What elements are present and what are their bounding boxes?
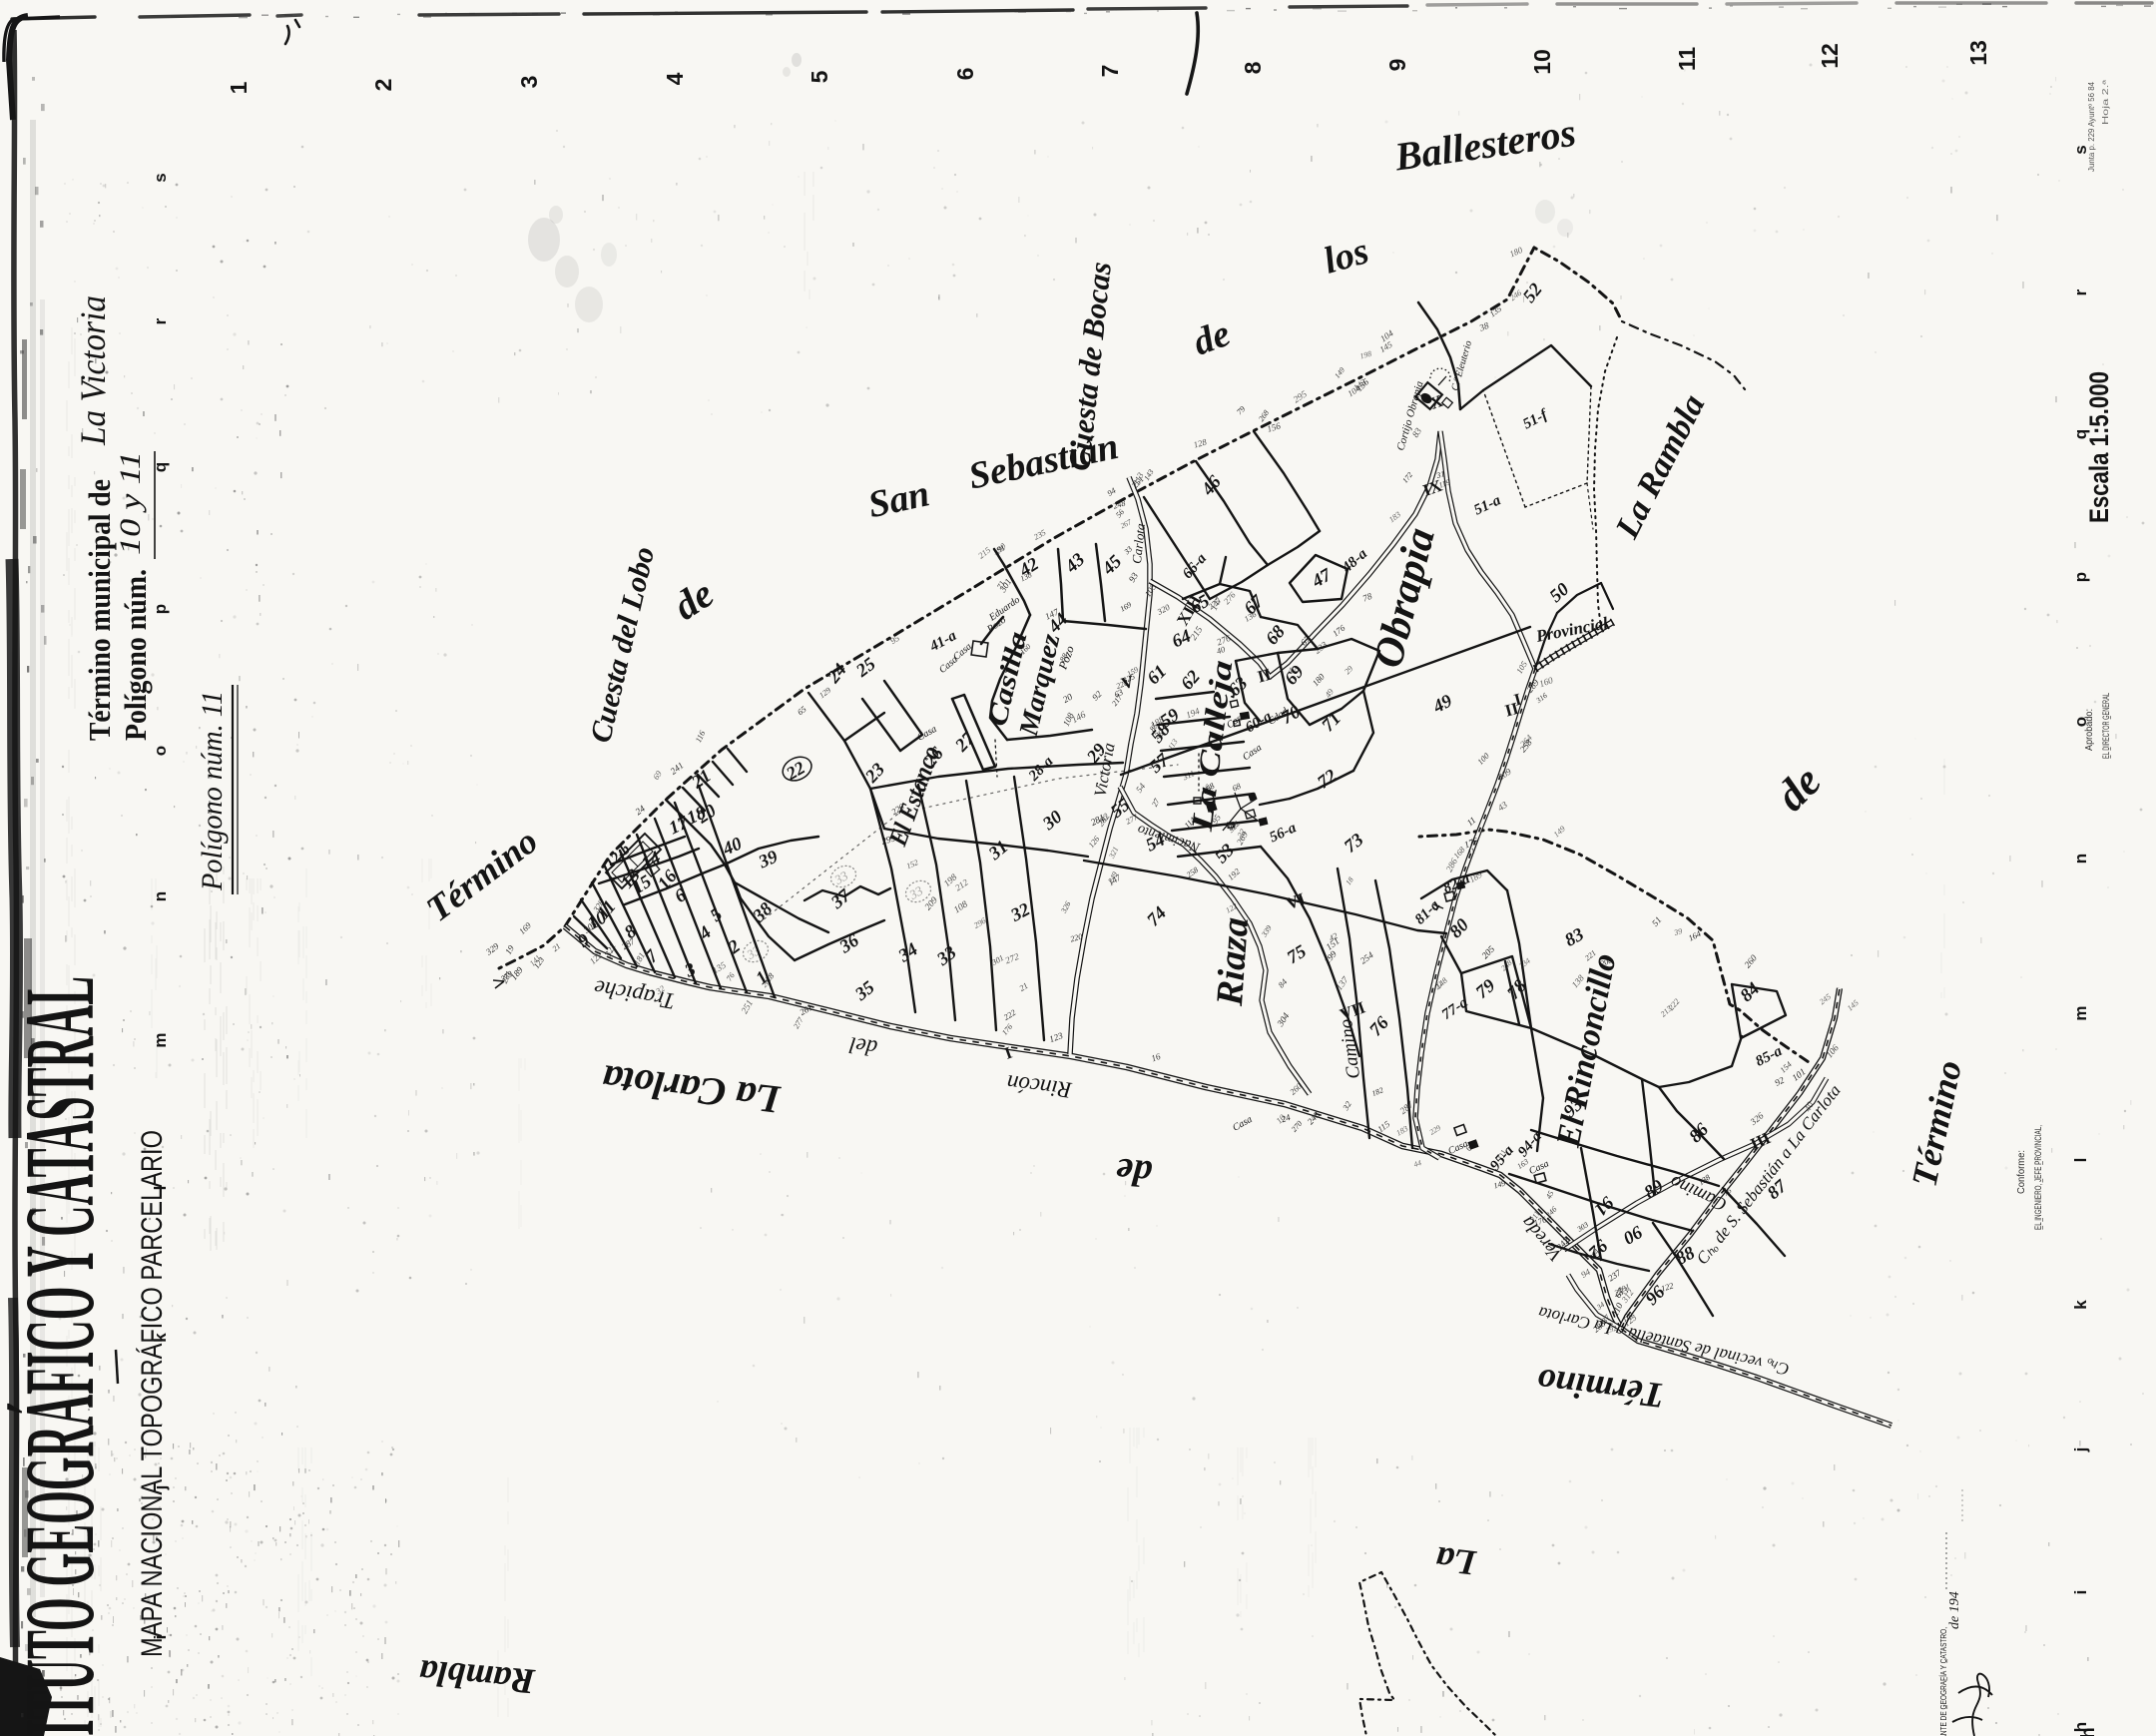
svg-text:Riaza: Riaza xyxy=(1209,915,1257,1007)
svg-text:k: k xyxy=(151,1333,170,1343)
svg-text:s: s xyxy=(151,173,170,182)
svg-text:del: del xyxy=(847,1032,878,1061)
svg-text:6: 6 xyxy=(952,68,978,81)
svg-text:q: q xyxy=(151,462,170,472)
svg-text:9: 9 xyxy=(1384,59,1410,72)
svg-text:r: r xyxy=(151,317,170,324)
svg-text:de 194: de 194 xyxy=(1947,1591,1962,1629)
svg-text:Junta p. 229 Ayuntº 56 84: Junta p. 229 Ayuntº 56 84 xyxy=(2087,81,2096,172)
svg-text:TITUTO GEOGRÁFICO Y CATASTRAL: TITUTO GEOGRÁFICO Y CATASTRAL xyxy=(4,976,115,1736)
svg-text:j: j xyxy=(2071,1447,2090,1453)
svg-text:p: p xyxy=(2071,572,2090,582)
svg-text:Polígono núm. 11: Polígono núm. 11 xyxy=(196,691,229,891)
svg-text:5: 5 xyxy=(807,70,832,83)
svg-text:1: 1 xyxy=(226,81,252,94)
svg-text:Escala 1:5.000: Escala 1:5.000 xyxy=(2084,371,2114,523)
svg-text:11: 11 xyxy=(1674,47,1700,72)
svg-text:MAPA NACIONAL TOPOGRÁFICO PARC: MAPA NACIONAL TOPOGRÁFICO PARCELARIO xyxy=(136,1130,169,1657)
svg-text:i: i xyxy=(2071,1590,2090,1595)
svg-text:i: i xyxy=(151,1635,170,1640)
svg-text:l: l xyxy=(151,1186,170,1191)
svg-text:n: n xyxy=(151,891,170,901)
svg-text:Término municipal de: Término municipal de xyxy=(82,479,117,741)
svg-text:10 y 11: 10 y 11 xyxy=(114,451,147,555)
svg-text:r: r xyxy=(2071,289,2090,295)
svg-text:p: p xyxy=(151,604,170,614)
svg-text:3: 3 xyxy=(516,76,542,89)
svg-text:h: h xyxy=(2078,1727,2099,1736)
svg-text:La: La xyxy=(1433,1539,1479,1584)
svg-text:12: 12 xyxy=(1817,43,1843,69)
svg-text:l: l xyxy=(2071,1158,2090,1163)
svg-text:de: de xyxy=(1114,1149,1154,1194)
svg-text:m: m xyxy=(2071,1005,2090,1020)
svg-text:13: 13 xyxy=(1965,40,1991,66)
svg-text:Hoja 2.ª: Hoja 2.ª xyxy=(2101,80,2110,125)
svg-text:j: j xyxy=(151,1485,170,1491)
svg-text:Aprobado:: Aprobado: xyxy=(2084,709,2095,751)
svg-text:La Victoria: La Victoria xyxy=(73,295,113,446)
svg-text:n: n xyxy=(2071,854,2090,864)
svg-text:8: 8 xyxy=(1240,61,1266,74)
svg-text:Conforme:: Conforme: xyxy=(2016,1150,2027,1194)
svg-text:o: o xyxy=(151,746,170,756)
svg-text:2: 2 xyxy=(370,79,396,92)
svg-text:10: 10 xyxy=(1529,49,1555,75)
svg-text:E̲L D̲IRECTOR G̲ENERAL: E̲L D̲IRECTOR G̲ENERAL xyxy=(2101,693,2111,759)
svg-text:7: 7 xyxy=(1097,65,1123,78)
svg-text:NDANTE DE G̲EOGRAF̲ÍA Y C̲ATAS: NDANTE DE G̲EOGRAF̲ÍA Y C̲ATASTRO, xyxy=(1939,1627,1948,1736)
svg-text:Polígono núm.: Polígono núm. xyxy=(118,569,153,741)
svg-text:m: m xyxy=(151,1032,170,1047)
svg-text:4: 4 xyxy=(662,72,688,85)
svg-text:E̲L I̲NGENIERO, J̲EFE P̲ROVINC: E̲L I̲NGENIERO, J̲EFE P̲ROVINCIAL, xyxy=(2033,1125,2043,1230)
svg-text:k: k xyxy=(2071,1300,2090,1310)
